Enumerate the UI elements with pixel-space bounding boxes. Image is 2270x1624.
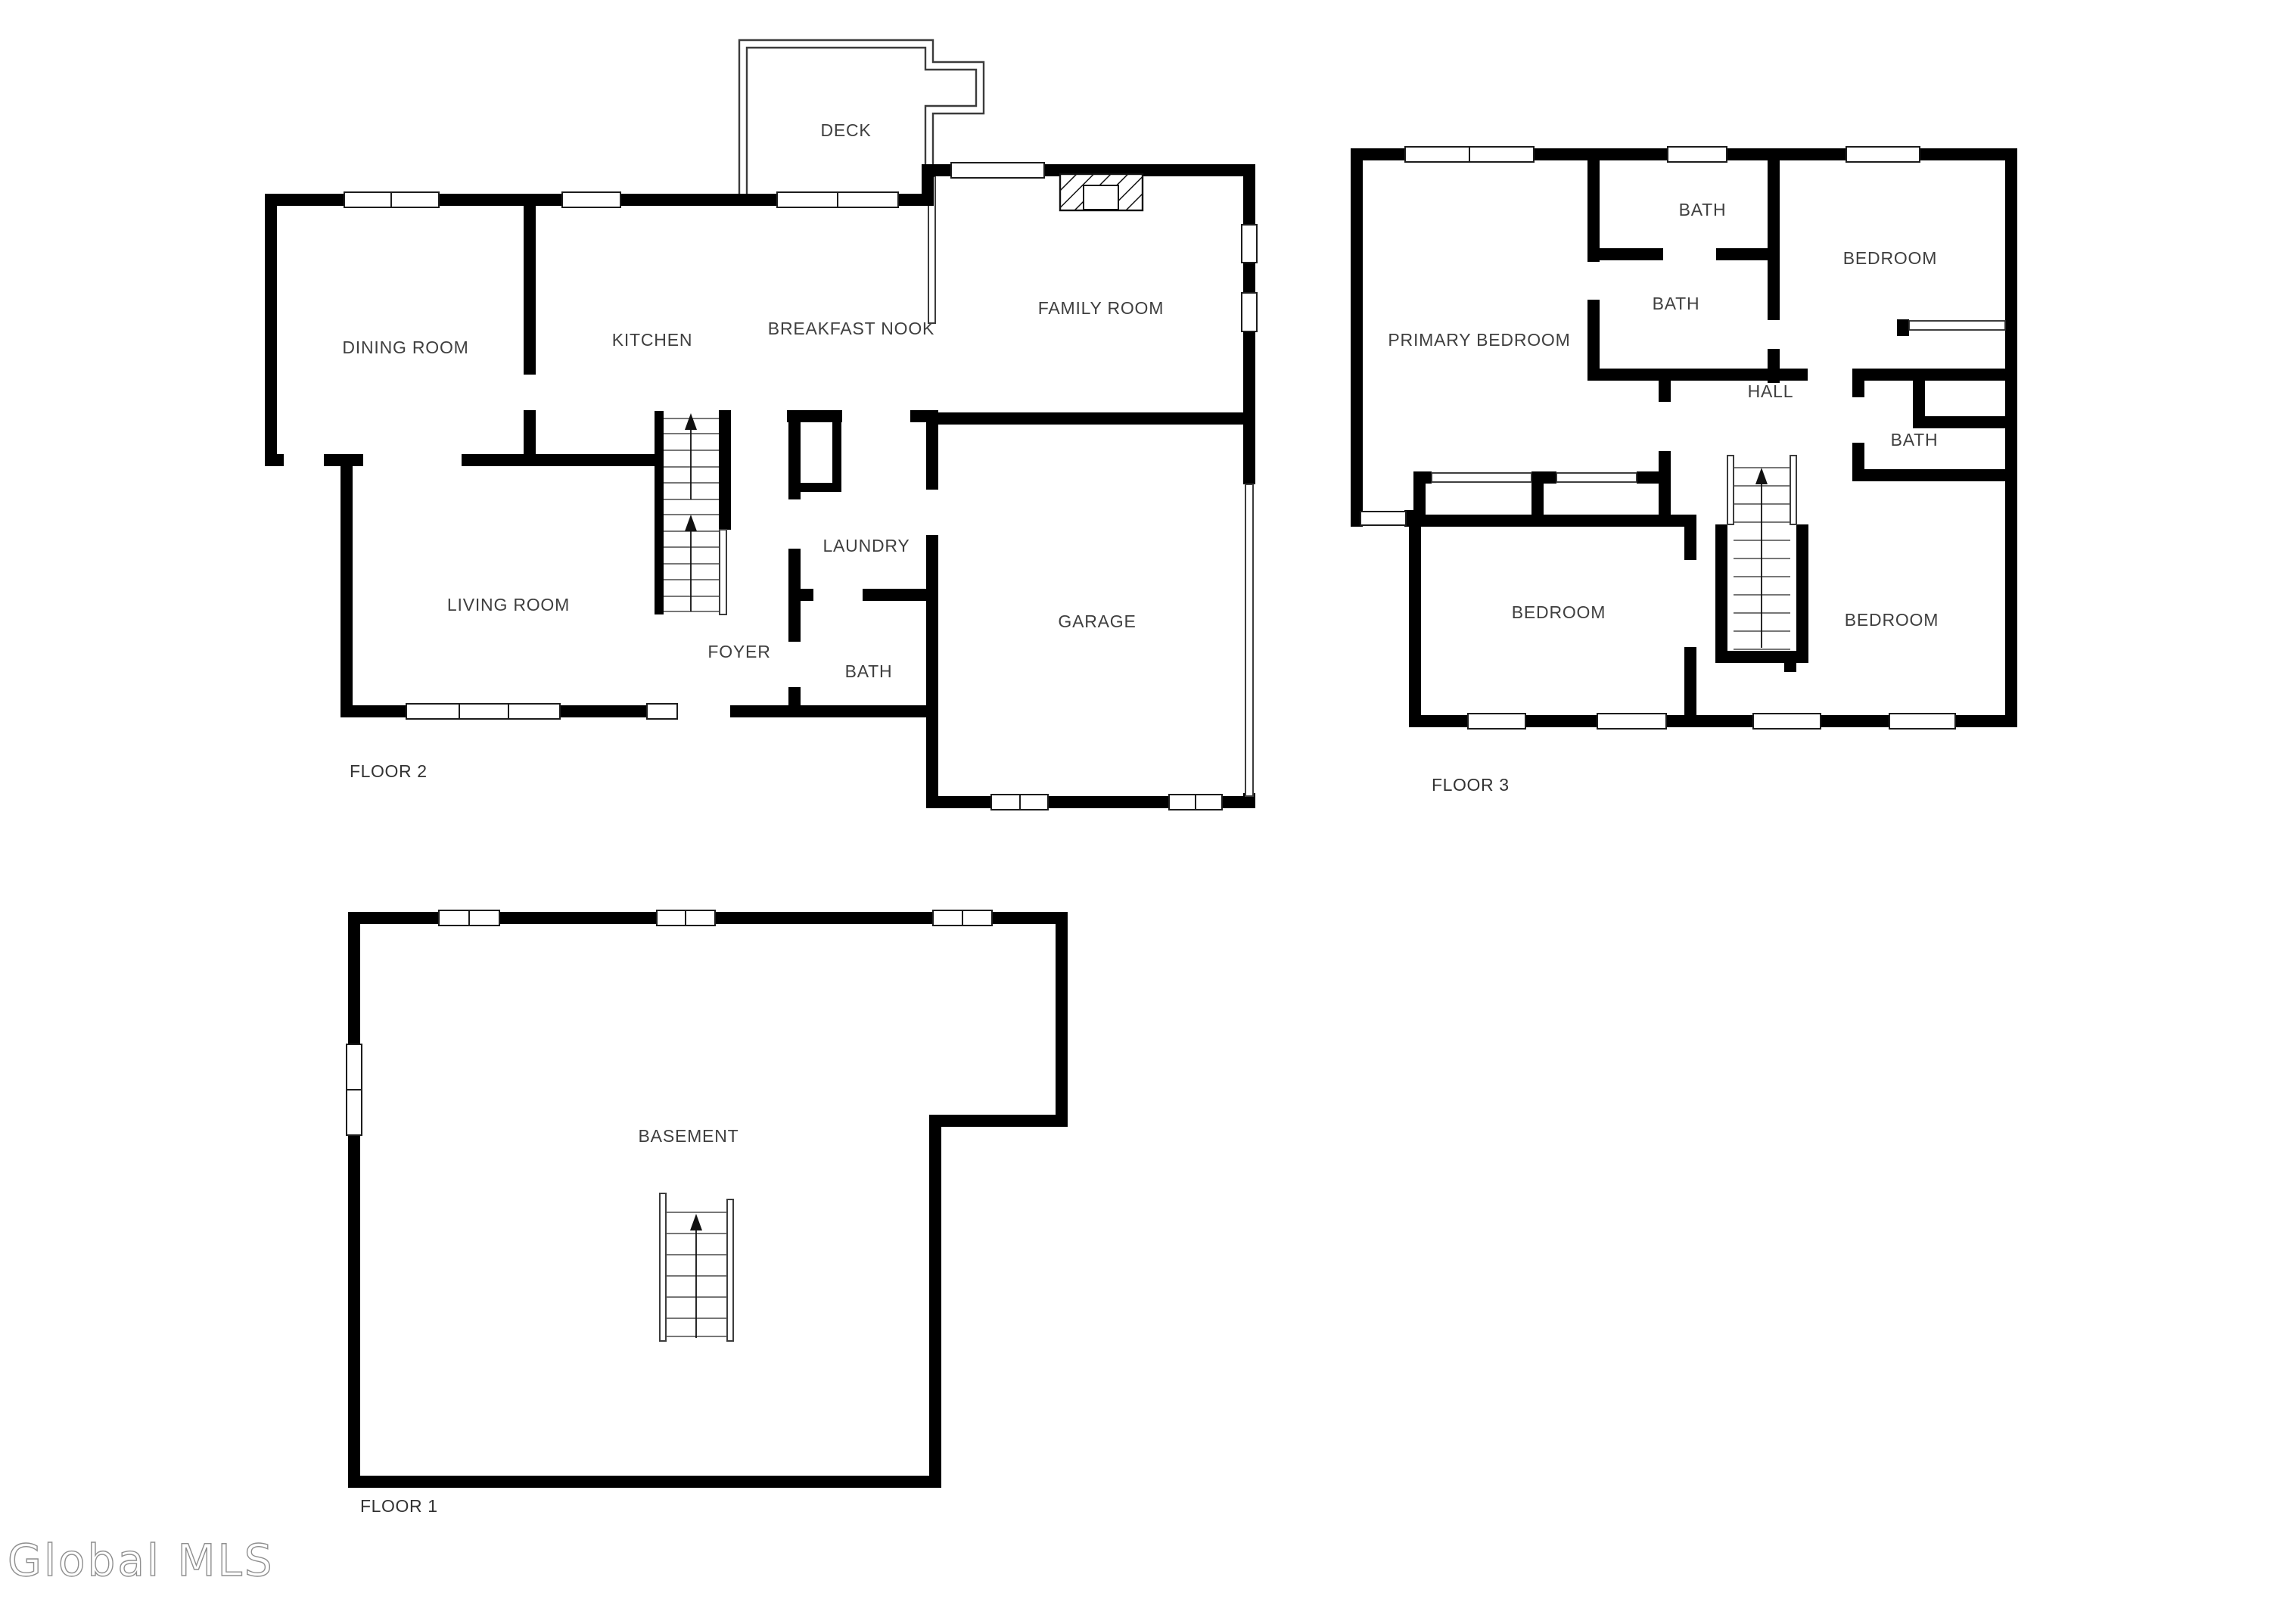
- room-label-dining-room: DINING ROOM: [342, 338, 468, 357]
- window: [1846, 147, 1920, 162]
- room-label-bedroom-top-right: BEDROOM: [1843, 248, 1937, 268]
- room-label-bath-middle: BATH: [1653, 294, 1700, 313]
- garage-thin-wall: [1245, 484, 1253, 796]
- room-label-deck: DECK: [820, 120, 871, 140]
- room-label-bedroom-bottom-right: BEDROOM: [1845, 610, 1939, 630]
- room-label-kitchen: KITCHEN: [612, 330, 693, 350]
- window: [439, 910, 499, 926]
- room-label-primary-bedroom: PRIMARY BEDROOM: [1388, 330, 1570, 350]
- front-door-sidelight: [647, 704, 677, 719]
- floor-1-label: FLOOR 1: [360, 1496, 438, 1516]
- window: [933, 910, 992, 926]
- fireplace: [1060, 174, 1143, 210]
- window: [1169, 795, 1222, 810]
- closet-sliding-door: [1556, 473, 1637, 482]
- room-label-garage: GARAGE: [1058, 611, 1136, 631]
- room-label-foyer: FOYER: [707, 642, 770, 661]
- window: [1405, 147, 1534, 162]
- deck-door: [777, 192, 898, 207]
- window: [1242, 293, 1257, 331]
- window: [991, 795, 1048, 810]
- window: [1468, 714, 1525, 729]
- window: [1753, 714, 1821, 729]
- room-label-bedroom-bottom-left: BEDROOM: [1512, 602, 1606, 622]
- closet-sliding-door: [1909, 321, 2005, 330]
- window: [1242, 225, 1257, 263]
- room-label-basement: BASEMENT: [639, 1126, 739, 1146]
- room-label-family-room: FAMILY ROOM: [1038, 298, 1164, 318]
- room-label-living-room: LIVING ROOM: [447, 595, 570, 614]
- room-label-bath-right: BATH: [1891, 430, 1939, 450]
- room-label-hall: HALL: [1748, 381, 1794, 401]
- room-label-bath-floor2: BATH: [845, 661, 893, 681]
- global-mls-watermark: Global MLS: [8, 1535, 275, 1586]
- floorplan-canvas: DINING ROOM KITCHEN BREAKFAST NOOK DECK …: [0, 0, 2270, 1624]
- room-label-laundry: LAUNDRY: [822, 536, 910, 555]
- window: [657, 910, 715, 926]
- window: [406, 704, 560, 719]
- room-label-breakfast-nook: BREAKFAST NOOK: [768, 319, 934, 338]
- window: [562, 192, 620, 207]
- stair-rail: [720, 530, 726, 614]
- window: [344, 192, 439, 207]
- window: [1597, 714, 1666, 729]
- window: [951, 163, 1044, 178]
- closet-sliding-door: [1432, 473, 1531, 482]
- window: [1360, 512, 1406, 525]
- window: [1668, 147, 1727, 162]
- floor-2-label: FLOOR 2: [350, 761, 428, 781]
- floor-3-label: FLOOR 3: [1432, 775, 1510, 795]
- window: [1889, 714, 1955, 729]
- room-label-bath-top: BATH: [1679, 200, 1727, 219]
- page-background: [0, 0, 2270, 1624]
- window: [347, 1044, 362, 1135]
